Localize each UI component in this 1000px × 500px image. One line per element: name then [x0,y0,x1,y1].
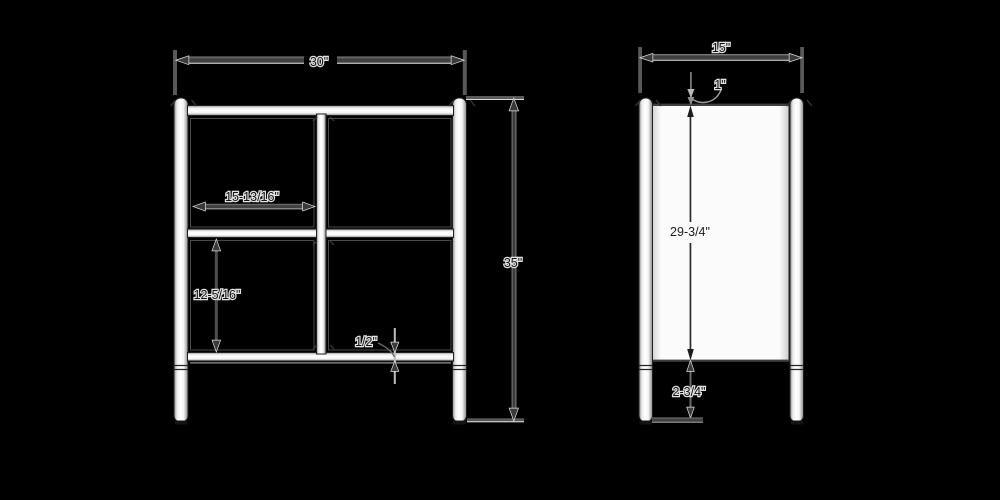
svg-text:1/2": 1/2" [355,335,377,349]
svg-text:15-13/16": 15-13/16" [225,190,279,204]
svg-text:2-3/4": 2-3/4" [673,385,706,399]
svg-text:29-3/4": 29-3/4" [670,225,710,239]
svg-text:35": 35" [504,256,522,270]
svg-text:15": 15" [712,41,730,55]
svg-text:12-5/16": 12-5/16" [194,288,241,302]
svg-text:30": 30" [310,55,328,69]
svg-text:1": 1" [714,78,725,92]
